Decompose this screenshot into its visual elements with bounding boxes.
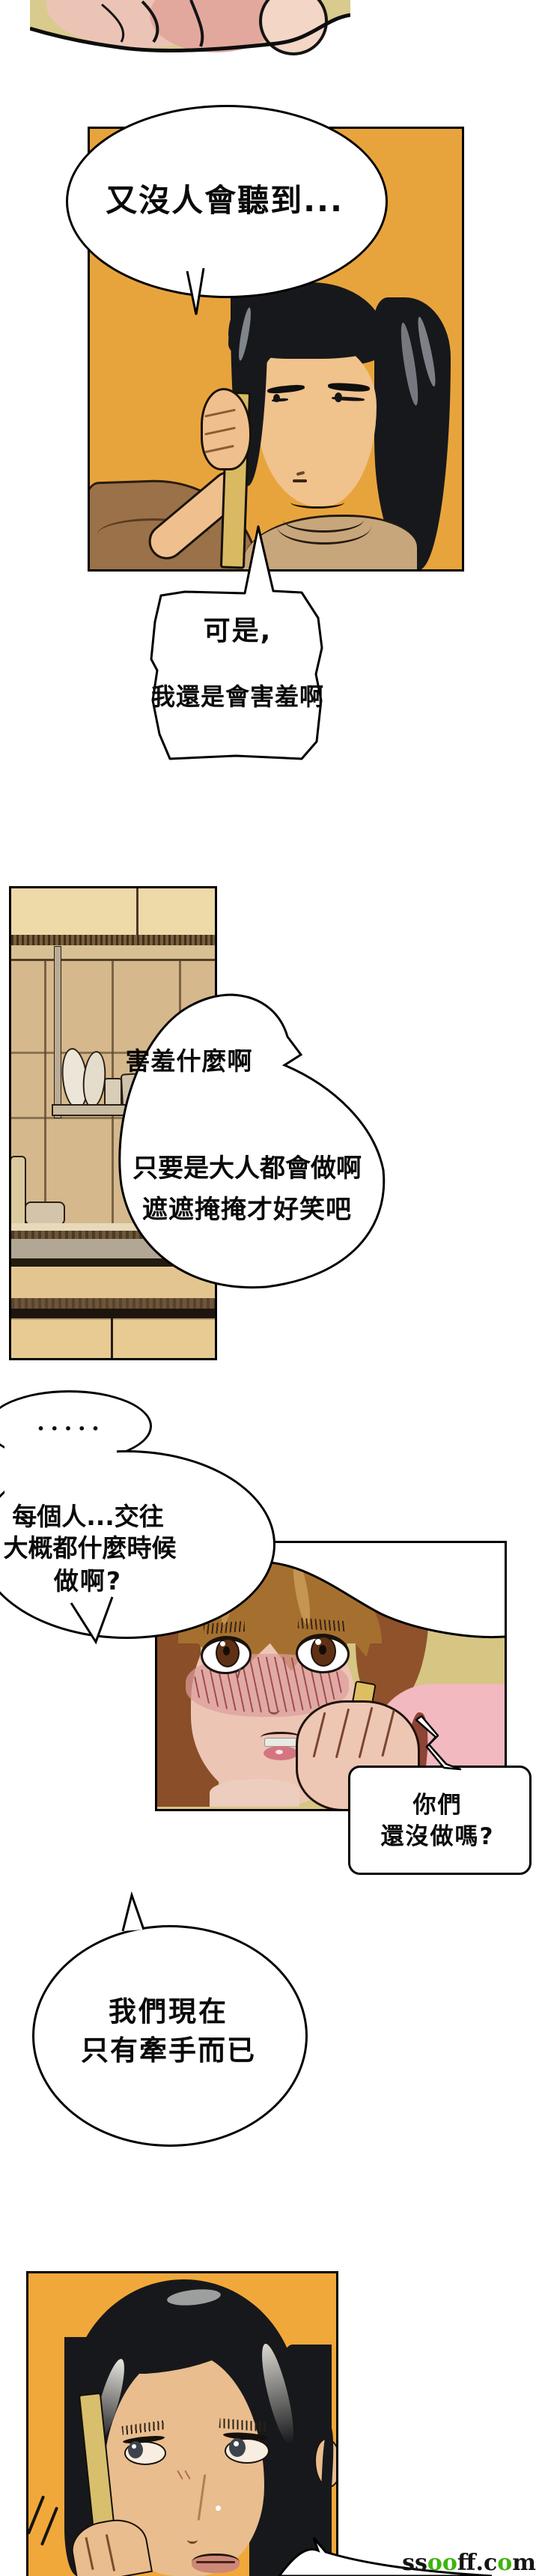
cabinet-rail [11, 935, 215, 945]
nostril [187, 2536, 198, 2544]
pupil-left [273, 394, 280, 402]
bottle [10, 1156, 26, 1226]
bubble-6-line-2: 還沒做嗎? [348, 1823, 527, 1851]
nose-highlight [216, 2506, 221, 2511]
soap-dish [25, 1201, 65, 1225]
bubble-4-dots: ••••• [15, 1422, 127, 1437]
motion-line-1 [27, 2495, 45, 2534]
shelf-strip [11, 945, 215, 961]
face [257, 341, 377, 507]
lip-gloss [275, 1750, 283, 1754]
watermark-seg-4: o [497, 2550, 512, 2576]
speech-bubble-3 [111, 990, 386, 1293]
speech-bubble-6 [348, 1766, 532, 1875]
watermark-seg-5: m [512, 2550, 536, 2576]
bubble-7-line-2: 只有牽手而已 [34, 2034, 303, 2067]
top-panel-fragment [30, 0, 350, 57]
bubble-5-line-1: 每個人...交往 [4, 1503, 172, 1532]
cabinet-seam [136, 888, 138, 935]
comic-page: 又沒人會聽到... 可是, 我還是會害羞啊 [0, 0, 539, 2576]
tile-grout-v1 [44, 959, 46, 1223]
bubble-3-line-2: 只要是大人都會做啊 [112, 1154, 382, 1184]
lower-cabinet-seam [111, 1318, 113, 1358]
bubble-7-line-1: 我們現在 [34, 1995, 303, 2028]
lips [192, 2554, 240, 2573]
counter-band-dark4 [11, 1309, 215, 1318]
bubble-3-line-3: 遮遮掩掩才好笑吧 [112, 1195, 382, 1225]
watermark-seg-2: oo [427, 2550, 457, 2576]
bubble-1-text: 又沒人會聽到... [66, 182, 383, 219]
speech-bubble-7-tail [0, 0, 539, 1]
motion-line-2 [40, 2506, 58, 2545]
eye-right-glint [234, 2441, 239, 2446]
upper-cabinet [11, 888, 215, 935]
bubble-2-line-1: 可是, [146, 616, 329, 647]
nose [268, 1703, 280, 1715]
lip-seam [196, 2561, 235, 2563]
watermark: ssooff.com [388, 2550, 536, 2576]
bubble-5-line-3: 做啊? [0, 1567, 176, 1596]
chest [210, 1779, 299, 1807]
eye-left-pupil [223, 1646, 230, 1655]
watermark-seg-3: ff.c [457, 2550, 497, 2576]
bubble-5-line-2: 大概都什麼時候 [0, 1534, 180, 1563]
eye-left-glint [132, 2444, 136, 2449]
bubble-3-line-1: 害羞什麼啊 [105, 1047, 273, 1076]
pupil-right [335, 393, 342, 402]
eye-left-iris [128, 2441, 143, 2458]
mouth [293, 479, 307, 482]
bubble-2-line-2: 我還是會害羞啊 [146, 683, 329, 712]
dishrack-post [54, 946, 61, 1118]
bubble-6-line-1: 你們 [348, 1792, 527, 1819]
panel-4 [26, 2271, 338, 2576]
lower-cabinet [11, 1318, 215, 1360]
watermark-seg-1: ss [402, 2550, 427, 2576]
counter-band-dark3 [11, 1298, 215, 1309]
eye-right-pupil [319, 1645, 326, 1655]
